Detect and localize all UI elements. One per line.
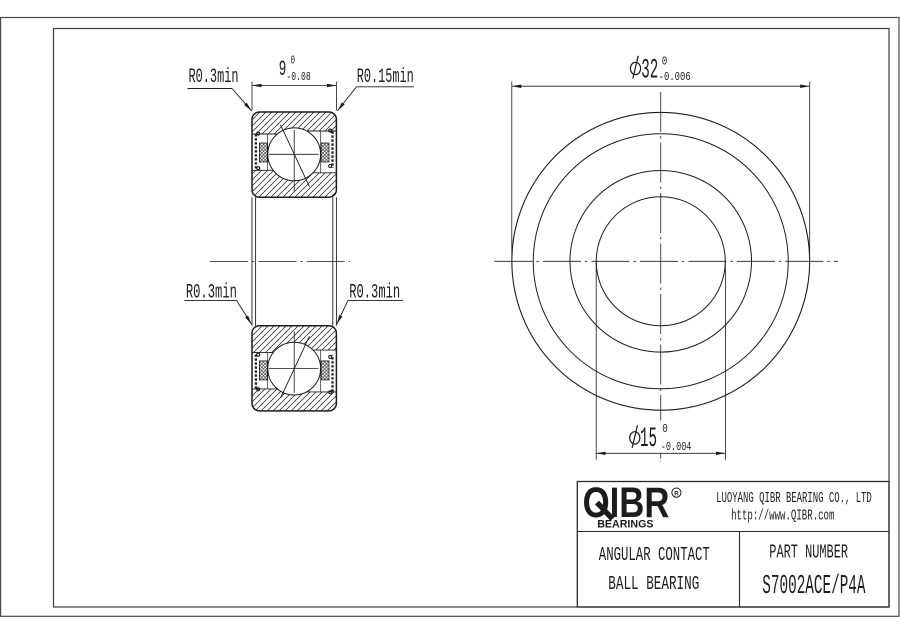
svg-text:0: 0 bbox=[662, 55, 668, 69]
svg-text:ANGULAR CONTACT: ANGULAR CONTACT bbox=[599, 544, 710, 566]
svg-text:LUOYANG QIBR BEARING CO., LTD: LUOYANG QIBR BEARING CO., LTD bbox=[716, 491, 872, 507]
svg-text:0: 0 bbox=[291, 53, 296, 67]
svg-text:http://www.QIBR.com: http://www.QIBR.com bbox=[731, 508, 834, 524]
svg-text:S7002ACE/P4A: S7002ACE/P4A bbox=[762, 571, 865, 601]
svg-text:15: 15 bbox=[640, 424, 657, 455]
svg-text:R0.3min: R0.3min bbox=[189, 66, 239, 89]
svg-text:BEARINGS: BEARINGS bbox=[597, 519, 653, 531]
svg-text:-0.006: -0.006 bbox=[659, 70, 691, 84]
svg-text:R0.3min: R0.3min bbox=[349, 282, 400, 305]
svg-text:32: 32 bbox=[641, 56, 658, 87]
svg-text:-0.004: -0.004 bbox=[661, 440, 692, 454]
svg-text:9: 9 bbox=[279, 57, 287, 82]
svg-text:R0.3min: R0.3min bbox=[186, 282, 237, 305]
svg-text:R0.15min: R0.15min bbox=[357, 66, 414, 89]
svg-text:BALL BEARING: BALL BEARING bbox=[608, 573, 699, 595]
svg-text:PART NUMBER: PART NUMBER bbox=[769, 541, 848, 563]
svg-text:0: 0 bbox=[662, 422, 668, 436]
svg-text:-0.08: -0.08 bbox=[286, 70, 310, 84]
svg-text:R: R bbox=[674, 490, 679, 497]
